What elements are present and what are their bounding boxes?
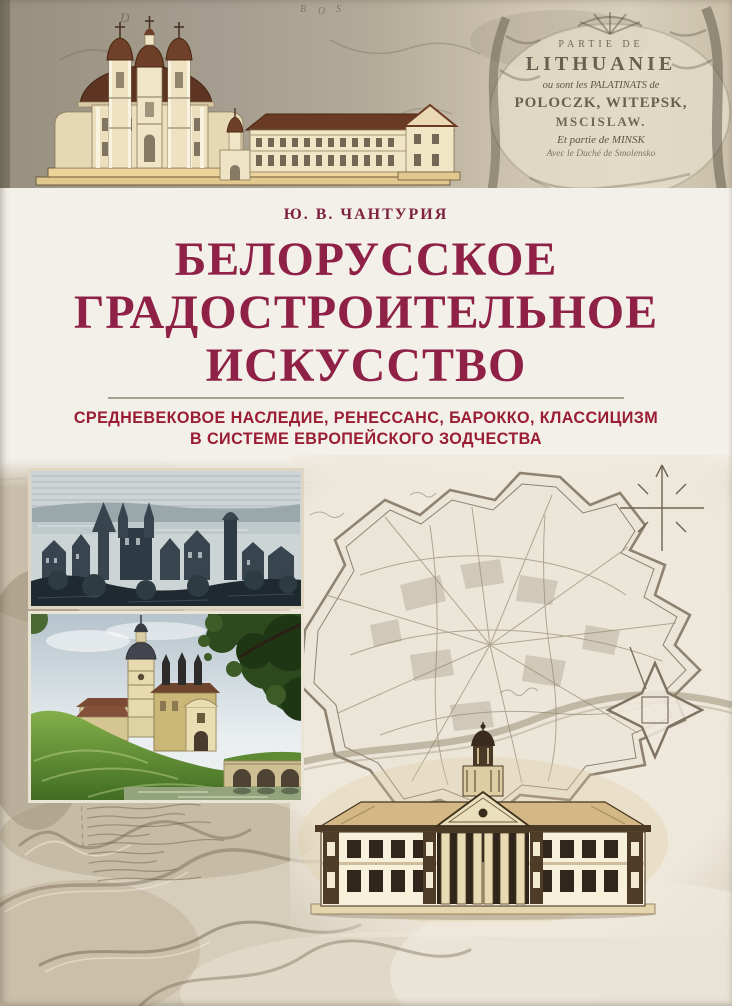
subtitle-line: В СИСТЕМЕ ЕВРОПЕЙСКОГО ЗОДЧЕСТВА	[7, 429, 724, 450]
book-title-line: ГРАДОСТРОИТЕЛЬНОЕ	[0, 287, 732, 339]
palace-elevation-drawing	[295, 722, 670, 922]
book-title-line: БЕЛОРУССКОЕ	[0, 234, 732, 286]
divider-rule	[108, 397, 624, 399]
author-name: Ю. В. ЧАНТУРИЯ	[0, 206, 732, 224]
cartouche-line: Avec le Duché de Smolensko	[470, 150, 732, 160]
handwritten-legend-lines	[80, 800, 290, 892]
title-panel: Ю. В. ЧАНТУРИЯ БЕЛОРУССКОЕ ГРАДОСТРОИТЕЛ…	[0, 188, 732, 458]
cartouche-line: PARTIE DE	[470, 40, 732, 51]
baroque-church-illustration	[18, 2, 468, 190]
top-banner: D B O S	[0, 0, 732, 190]
cartouche-line: MSCISLAW.	[470, 115, 732, 129]
cartouche-title: LITHUANIE	[470, 54, 732, 75]
book-cover: D B O S	[0, 0, 732, 1006]
city-panorama-engraving	[28, 468, 304, 609]
cartouche-line: POLOCZK, WITEPSK,	[470, 96, 732, 112]
map-cartouche: PARTIE DE LITHUANIE ou sont les PALATINA…	[470, 40, 732, 160]
castle-photograph	[28, 611, 304, 803]
subtitle-line: СРЕДНЕВЕКОВОЕ НАСЛЕДИЕ, РЕНЕССАНС, БАРОК…	[7, 408, 724, 429]
cartouche-line: Et partie de MINSK	[470, 135, 732, 147]
book-title-line: ИСКУССТВО	[0, 340, 732, 392]
cartouche-line: ou sont les PALATINATS de	[470, 80, 732, 91]
